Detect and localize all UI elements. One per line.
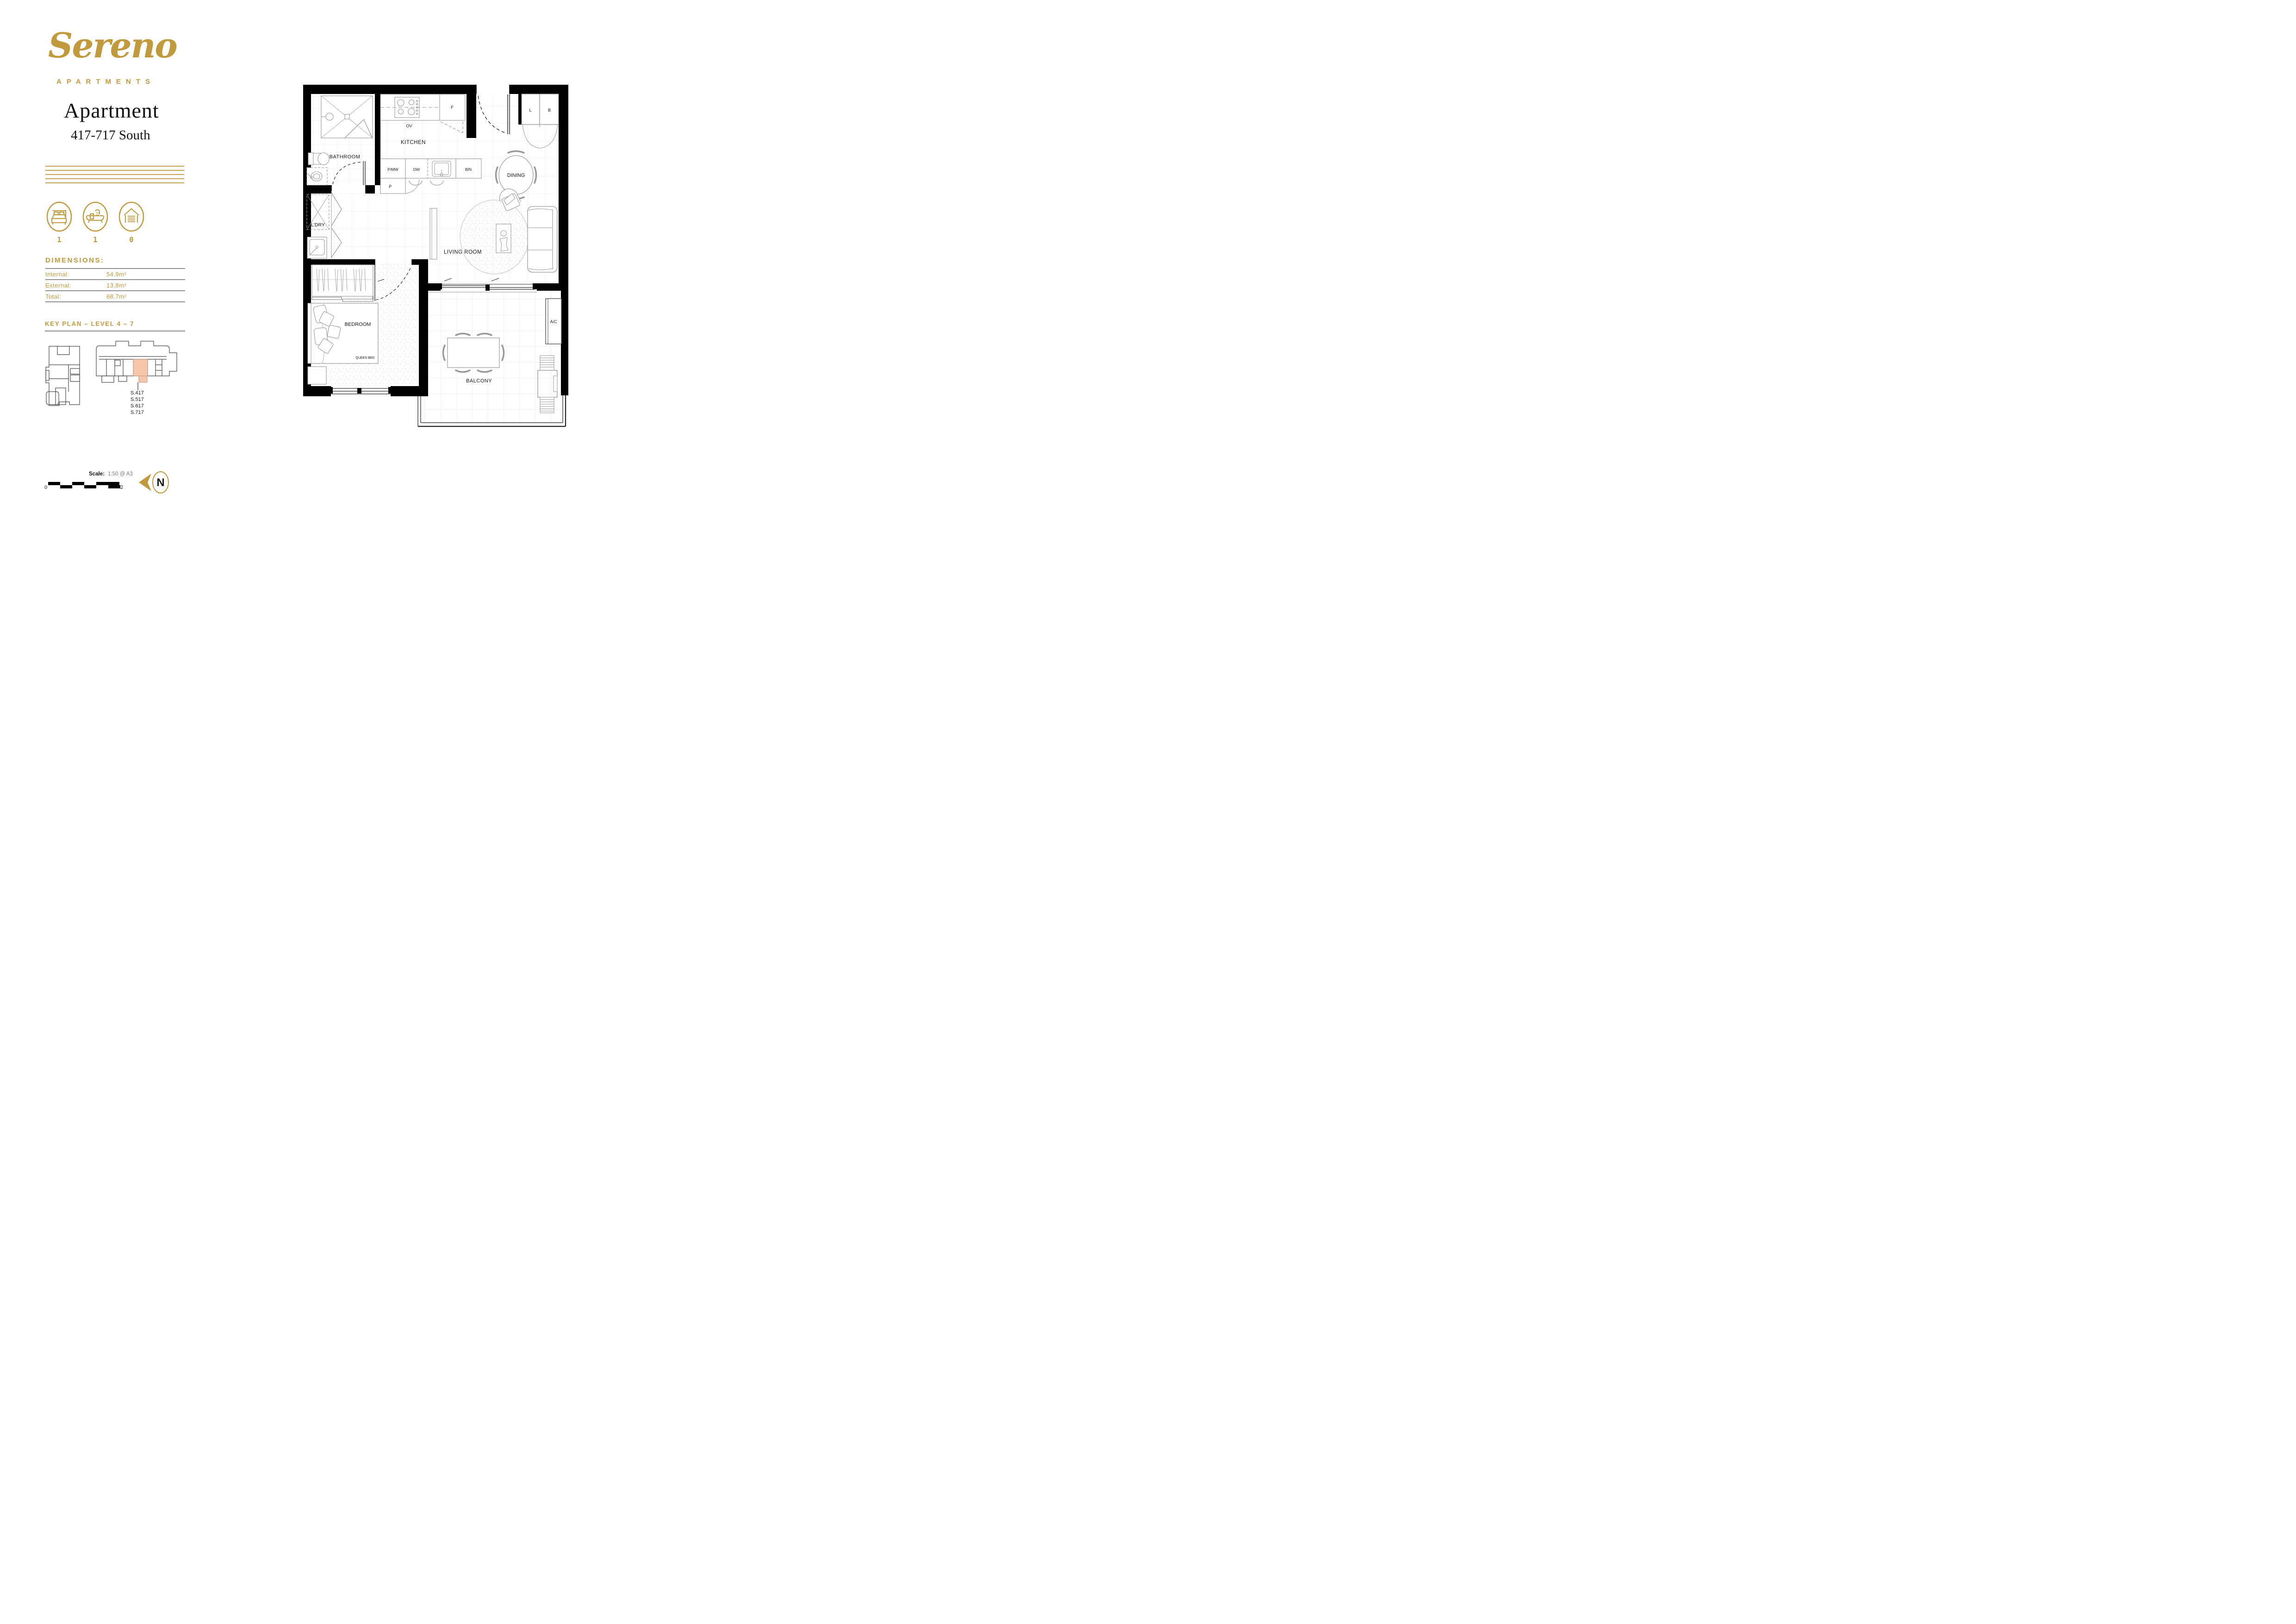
brand-logo: Sereno [48,29,177,63]
dishwasher-label: DW [413,167,420,172]
bin-label: BIN [465,167,472,172]
gold-rule [45,174,184,175]
unit-label: S.517 [131,397,144,402]
key-plan-rule [45,331,185,331]
north-arrow-icon [139,474,151,491]
queen-bed-label: QUEEN BED [355,356,374,360]
bedroom-label: BEDROOM [345,322,371,327]
scale-bar: 0 2 [44,482,123,490]
bath-icon [82,201,108,232]
gold-rule [45,166,184,167]
table-rule [45,268,185,269]
fridge-label: F [451,105,454,110]
dimension-row-value: 13.8m² [106,282,126,289]
toilet [308,153,329,165]
scale-bar-max: 2 [120,485,123,490]
parking-count: 0 [119,235,143,244]
bedroom-count: 1 [47,235,71,244]
table-rule [45,301,185,302]
dimension-row-value: 68.7m² [106,293,126,300]
dimension-row-label: Total: [45,293,61,300]
bed-icon [46,201,72,232]
sofa [528,206,557,272]
gold-rule [45,182,184,183]
brand-logo-subtitle: APARTMENTS [56,78,155,86]
tv-cabinet [430,208,437,259]
north-indicator: N [139,472,168,493]
floor-plan: BATHROOM KITCHEN OV F P/MW DW BIN P L B … [301,83,569,431]
unit-label: S.717 [131,410,144,415]
dimensions-heading: DIMENSIONS: [45,256,105,264]
page-subtitle: 417-717 South [71,128,150,143]
page-title: Apartment [64,98,159,123]
pantry-microwave-label: P/MW [387,167,398,172]
table-rule [45,279,185,280]
garage-icon [118,201,144,232]
key-plan-diagram: S.417 S.517 S.617 S.717 [44,336,187,421]
key-plan-building-west [46,346,80,406]
oven-label: OV [406,124,412,128]
north-letter: N [156,476,164,489]
living-room-label: LIVING ROOM [444,250,482,255]
unit-label: S.617 [131,403,144,409]
linen-label: L [529,108,531,113]
queen-bed [308,303,378,363]
dimension-row-label: Internal: [45,271,69,278]
outdoor-dining-set [443,334,504,372]
pantry-cabinet [380,178,405,194]
ac-label: A/C [550,319,557,324]
key-plan-heading: KEY PLAN – LEVEL 4 – 7 [45,320,134,327]
bathroom-count: 1 [83,235,107,244]
bedside-table [308,367,326,384]
kitchen-label: KITCHEN [401,140,426,145]
dimension-row-value: 54.9m² [106,271,126,278]
gold-rule [45,178,184,179]
scale-bar-min: 0 [44,485,47,490]
broom-label: B [548,108,551,113]
coffee-table [496,224,511,253]
vanity-basin [307,168,327,185]
unit-label: S.417 [131,390,144,396]
key-plan-highlighted-unit [133,359,148,390]
laundry-tub [307,237,327,258]
dining-label: DINING [507,173,525,178]
rug [460,200,529,274]
wardrobe [312,265,373,301]
bathroom-label: BATHROOM [330,154,361,160]
scale-bar-and-north: 0 2 N [42,468,176,501]
balcony-label: BALCONY [466,378,492,384]
laundry-label: L'DRY [311,222,325,228]
dimension-row-label: External: [45,282,71,289]
gold-rule [45,170,184,171]
pantry-label: P [389,184,392,189]
bedroom-window [330,387,391,394]
shower [321,96,373,138]
floorplan-sheet: Sereno APARTMENTS Apartment 417-717 Sout… [0,0,717,507]
table-rule [45,290,185,291]
